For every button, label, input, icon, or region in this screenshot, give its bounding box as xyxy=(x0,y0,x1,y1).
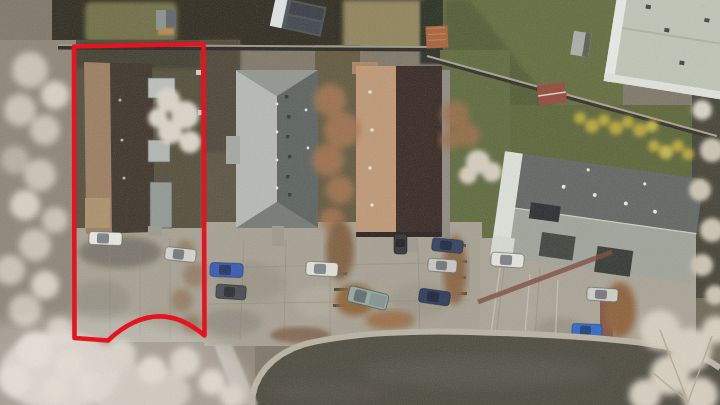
aerial-photo xyxy=(0,0,720,405)
aerial-photo-canvas xyxy=(0,0,720,405)
photo-grain xyxy=(0,0,720,405)
